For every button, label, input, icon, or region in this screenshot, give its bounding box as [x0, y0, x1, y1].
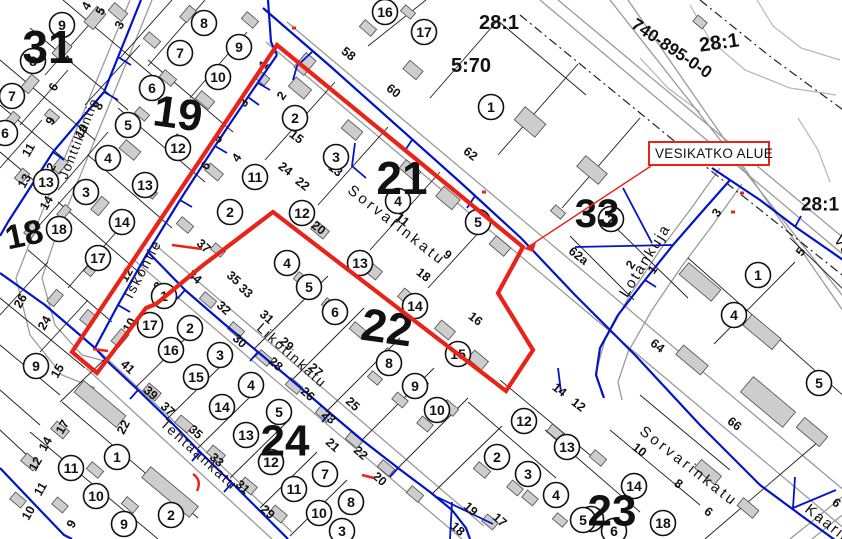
parcel-circle-number: 12: [294, 205, 310, 221]
parcel-circle-number: 1: [113, 449, 121, 465]
parcel-circle-number: 6: [148, 80, 156, 96]
building: [403, 60, 423, 79]
house-number: 3: [709, 206, 724, 220]
building: [108, 3, 127, 22]
parcel-number-circle: 14: [210, 395, 235, 420]
house-number: 25: [343, 394, 363, 414]
parcel-circle-number: 3: [524, 466, 532, 482]
parcel-circle-number: 6: [1, 125, 9, 141]
parcel-circle-number: 5: [305, 279, 313, 295]
parcel-number-circle: 4: [239, 373, 264, 398]
house-number: 11: [31, 480, 50, 498]
vesikatko-area-label-text: VESIKATKO ALUE: [655, 146, 773, 161]
parcel-number-circle: 16: [159, 338, 184, 363]
house-number: 62: [461, 144, 481, 164]
house-number: 9: [64, 517, 80, 530]
parcel-circle-number: 2: [493, 449, 501, 465]
parcel-circle-number: 11: [287, 481, 302, 497]
parcel-circle-number: 16: [163, 342, 179, 358]
parcel-circle-number: 3: [338, 523, 346, 539]
parcel-number-circle: 8: [192, 11, 217, 36]
parcel-circle-number: 9: [32, 358, 40, 374]
building: [589, 450, 606, 467]
block-label: 24: [261, 416, 310, 465]
building: [693, 15, 707, 29]
parcel-circle-number: 1: [754, 267, 762, 283]
parcel-circle-number: 7: [321, 466, 329, 482]
parcel-number-circle: 3: [74, 180, 99, 205]
house-number: 6: [829, 495, 842, 510]
parcel-number-circle: 4: [275, 251, 300, 276]
parcel-circle-number: 17: [416, 24, 432, 40]
parcel-number-circle: 13: [133, 173, 158, 198]
parcel-number-circle: 17: [412, 20, 437, 45]
parcel-circle-number: 5: [124, 117, 132, 133]
parcel-line: [0, 390, 40, 425]
boundary-dash-line: [700, 0, 842, 112]
building: [796, 417, 827, 446]
block-label: 18: [2, 212, 47, 257]
house-number: 8: [671, 476, 685, 491]
block-label: 23: [588, 486, 637, 535]
parcel-circle-number: 4: [104, 150, 112, 166]
parcel-circle-number: 3: [82, 184, 90, 200]
house-number: 58: [339, 44, 359, 64]
parcel-number-circle: 9: [403, 374, 428, 399]
parcel-number-circle: 11: [243, 165, 268, 190]
map-canvas: 58606262a6466151324222011918161412108661…: [0, 0, 842, 539]
parcel-number-circle: 5: [466, 210, 491, 235]
parcel-circle-number: 18: [51, 221, 67, 237]
parcel-number-circle: 2: [159, 503, 184, 528]
parcel-number-circle: 2: [283, 106, 308, 131]
parcel-number-circle: 7: [0, 84, 25, 109]
parcel-circle-number: 4: [552, 487, 560, 503]
house-number: 22: [293, 174, 313, 194]
house-number: 37: [194, 236, 214, 256]
parcel-number-circle: 5: [297, 275, 322, 300]
parcel-circle-number: 8: [385, 355, 393, 371]
house-number: 33: [236, 281, 256, 301]
house-number: 3: [112, 18, 128, 31]
parcel-circle-number: 9: [120, 516, 128, 532]
house-number: 6: [46, 80, 62, 93]
block-label: 5:70: [451, 55, 491, 77]
building: [119, 140, 141, 161]
red-cut-tick: [362, 475, 374, 478]
parcel-circle-number: 13: [559, 439, 575, 455]
house-number: 30: [230, 331, 250, 351]
water-branch-line: [352, 143, 366, 178]
block-label: 19: [150, 86, 205, 141]
building: [552, 513, 567, 527]
building: [143, 32, 160, 49]
parcel-circle-number: 3: [332, 149, 340, 165]
red-marker-dot: [740, 192, 744, 195]
building: [176, 217, 193, 234]
house-number: 39: [141, 383, 161, 403]
parcel-number-circle: 7: [168, 41, 193, 66]
parcel-number-circle: 10: [206, 65, 231, 90]
red-cut-tick: [93, 349, 108, 351]
parcel-circle-number: 5: [579, 512, 587, 528]
house-number: 21: [323, 435, 343, 455]
parcel-number-circle: 14: [110, 210, 135, 235]
house-number: 12: [569, 395, 589, 415]
building: [400, 5, 415, 19]
parcel-number-circle: 10: [425, 398, 450, 423]
parcel-circle-number: 17: [142, 317, 158, 333]
parcel-circle-number: 2: [226, 204, 234, 220]
terrain-line: [757, 0, 840, 60]
building: [341, 120, 363, 141]
parcel-circle-number: 10: [429, 402, 445, 418]
parcel-circle-number: 6: [331, 304, 339, 320]
parcel-circle-number: 13: [352, 255, 368, 271]
parcel-number-circle: 9: [227, 35, 252, 60]
parcel-circle-number: 5: [474, 214, 482, 230]
parcel-circle-number: 9: [411, 378, 419, 394]
building: [288, 77, 311, 99]
vesikatko-area-label: VESIKATKO ALUE: [648, 141, 770, 166]
parcel-circle-number: 10: [311, 505, 327, 521]
parcel-circle-number: 11: [248, 169, 263, 185]
parcel-number-circle: 7: [313, 462, 338, 487]
house-number: 26: [11, 291, 30, 310]
block-label: 22: [358, 298, 416, 357]
parcel-circle-number: 10: [88, 488, 104, 504]
parcel-number-circle: 13: [555, 435, 580, 460]
parcel-circle-number: 2: [291, 110, 299, 126]
building: [741, 377, 796, 428]
parcel-circle-number: 13: [238, 427, 254, 443]
parcel-circle-number: 13: [38, 174, 54, 190]
parcel-number-circle: 4: [96, 146, 121, 171]
parcel-circle-number: 13: [137, 177, 153, 193]
parcel-number-circle: 17: [86, 246, 111, 271]
parcel-number-circle: 3: [516, 462, 541, 487]
house-number: 18: [414, 265, 434, 285]
water-branch-line: [793, 477, 795, 508]
water-branch-line: [623, 188, 652, 243]
parcel-number-circle: 9: [24, 354, 49, 379]
house-number: 17: [53, 417, 72, 436]
parcel-circle-number: 4: [730, 307, 738, 323]
building: [489, 236, 511, 257]
parcel-number-circle: 12: [290, 201, 315, 226]
parcel-number-circle: 16: [373, 0, 398, 25]
parcel-number-circle: 11: [59, 456, 84, 481]
parcel-circle-number: 9: [235, 39, 243, 55]
house-number: 16: [466, 309, 486, 329]
water-branch-line: [177, 290, 185, 299]
water-branch-line: [795, 216, 801, 227]
water-branch-line: [180, 200, 192, 207]
parcel-circle-number: 7: [176, 45, 184, 61]
parcel-circle-number: 15: [188, 369, 204, 385]
building: [743, 314, 781, 349]
parcel-circle-number: 17: [90, 250, 106, 266]
parcel-circle-number: 18: [655, 515, 671, 531]
parcel-number-circle: 1: [479, 95, 504, 120]
house-number: 6: [701, 504, 715, 519]
building: [241, 12, 258, 29]
parcel-number-circle: 2: [218, 200, 243, 225]
building: [86, 462, 103, 479]
parcel-number-circle: 10: [84, 484, 109, 509]
parcel-circle-number: 5: [815, 375, 823, 391]
parcel-number-circle: 18: [47, 217, 72, 242]
house-number: 4: [229, 151, 244, 165]
parcel-number-circle: 3: [330, 519, 355, 539]
block-label: 28:1: [801, 195, 839, 216]
water-branch-line: [118, 57, 131, 65]
parcel-line: [0, 430, 30, 458]
parcel-circle-number: 3: [216, 347, 224, 363]
parcel-number-circle: 11: [282, 477, 307, 502]
building: [737, 498, 759, 519]
parcel-circle-number: 2: [186, 320, 194, 336]
parcel-number-circle: 6: [323, 300, 348, 325]
parcel-circle-number: 12: [170, 140, 186, 156]
water-branch-line: [645, 280, 656, 287]
red-marker-dot: [731, 211, 735, 214]
parcel-circle-number: 2: [167, 507, 175, 523]
parcel-circle-number: 7: [8, 88, 16, 104]
building: [514, 107, 546, 137]
parcel-number-circle: 2: [485, 445, 510, 470]
parcel-circle-number: 4: [247, 377, 255, 393]
building: [676, 345, 708, 375]
house-number: 2: [274, 89, 289, 103]
parcel-number-circle: 4: [722, 303, 747, 328]
building: [359, 20, 376, 37]
parcel-number-circle: 9: [112, 512, 137, 537]
parcel-circle-number: 8: [200, 15, 208, 31]
parcel-circle-number: 12: [516, 413, 532, 429]
block-label: 33: [575, 192, 620, 236]
parcel-number-circle: 5: [807, 371, 832, 396]
parcel-number-circle: 10: [307, 501, 332, 526]
parcel-number-circle: 1: [105, 445, 130, 470]
water-branch-line: [130, 390, 138, 399]
house-number: 24: [276, 159, 296, 179]
parcel-circle-number: 11: [64, 460, 79, 476]
parcel-number-circle: 4: [544, 483, 569, 508]
red-cut-arc: [193, 474, 199, 491]
cadastral-map: 58606262a6466151324222011918161412108661…: [0, 0, 842, 539]
terrain-line: [798, 118, 830, 182]
water-branch-line: [215, 146, 227, 153]
parcel-number-circle: 12: [512, 409, 537, 434]
parcel-circle-number: 14: [214, 399, 230, 415]
red-marker-dot: [482, 191, 486, 194]
parcel-number-circle: 18: [651, 511, 676, 536]
house-number: 60: [384, 81, 404, 101]
parcel-number-circle: 13: [234, 423, 259, 448]
parcel-number-circle: 3: [208, 343, 233, 368]
parcel-circle-number: 10: [210, 69, 226, 85]
parcel-line: [120, 0, 172, 58]
parcel-number-circle: 1: [746, 263, 771, 288]
building: [52, 497, 69, 513]
parcel-circle-number: 4: [283, 255, 291, 271]
parcel-circle-number: 8: [347, 494, 355, 510]
building: [522, 490, 539, 506]
block-label: 28:1: [479, 12, 519, 34]
house-number: 14: [550, 380, 570, 400]
parcel-number-circle: 5: [116, 113, 141, 138]
parcel-number-circle: 8: [339, 490, 364, 515]
parcel-number-circle: 2: [178, 316, 203, 341]
parcel-number-circle: 6: [0, 121, 18, 146]
block-label: 31: [22, 21, 73, 73]
parcel-circle-number: 14: [114, 214, 130, 230]
parcel-circle-number: 16: [377, 4, 393, 20]
red-marker-dot: [292, 27, 296, 30]
building: [406, 486, 423, 503]
house-number: 15: [48, 361, 67, 380]
block-label: 28:1: [698, 29, 741, 56]
parcel-number-circle: 3: [324, 145, 349, 170]
parcel-number-circle: 13: [34, 170, 59, 195]
parcel-circle-number: 1: [487, 99, 495, 115]
parcel-number-circle: 15: [184, 365, 209, 390]
water-branch-line: [118, 305, 130, 312]
building: [577, 156, 607, 185]
